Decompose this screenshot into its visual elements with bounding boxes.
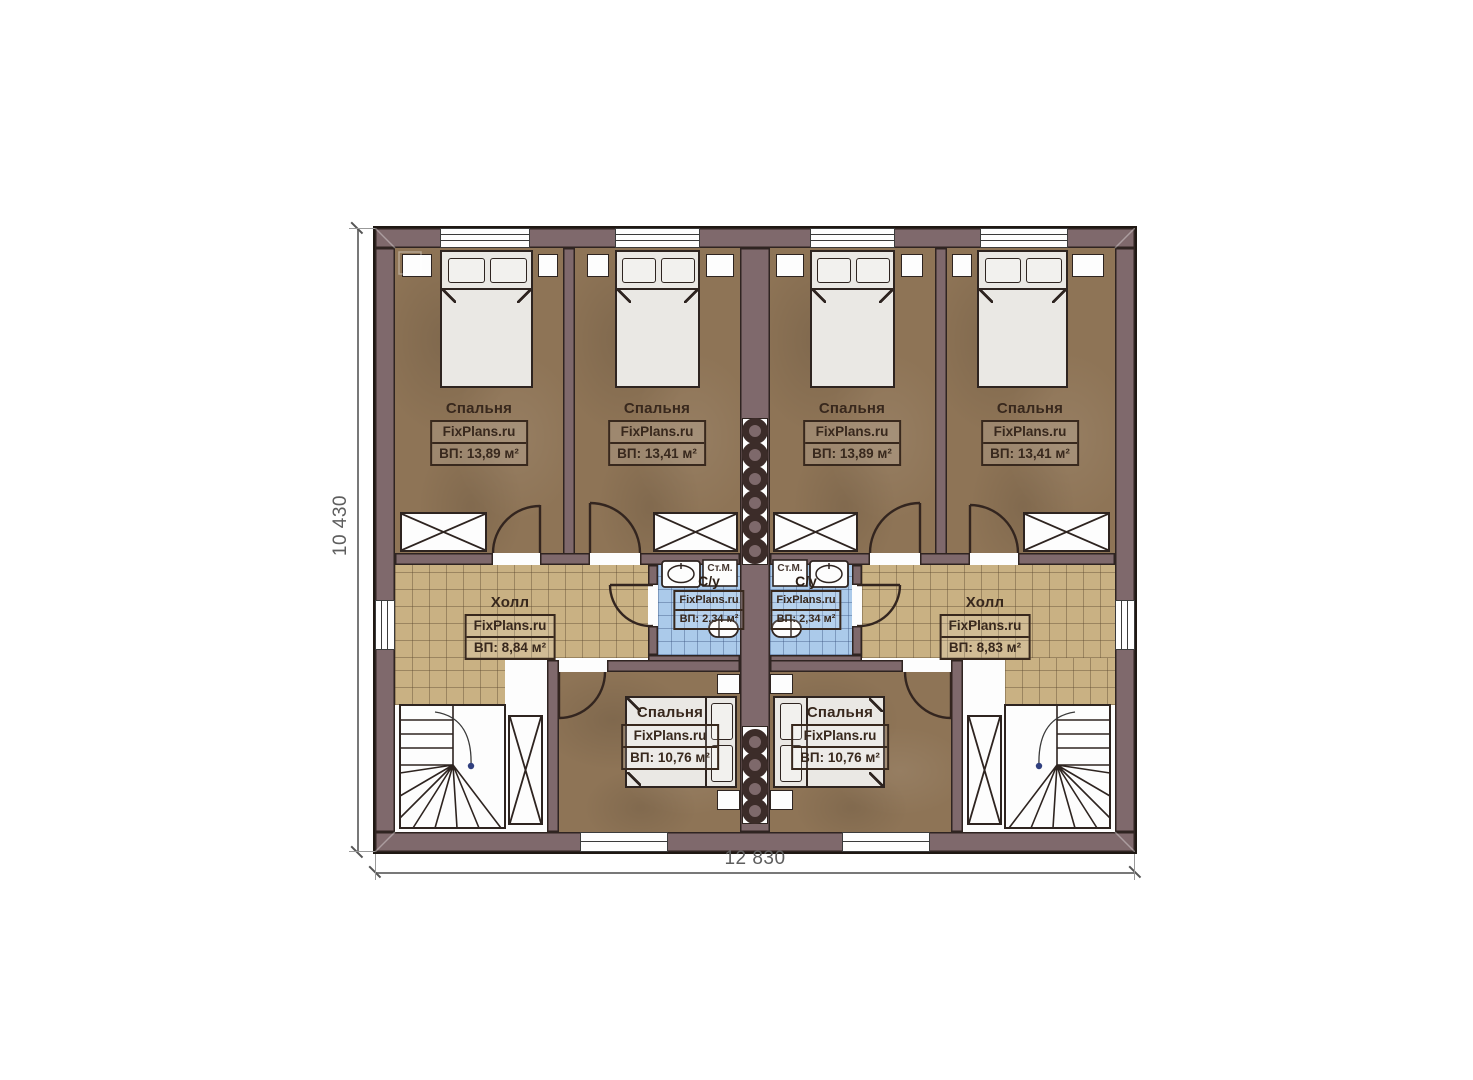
room-info-box: FixPlans.ru ВП: 13,41 м² [608, 420, 706, 466]
extension-line [349, 228, 375, 229]
dimension-width-label: 12 830 [700, 848, 810, 870]
watermark: FixPlans.ru [623, 726, 717, 746]
room-area: ВП: 2,34 м² [675, 609, 742, 628]
room-area: ВП: 13,41 м² [610, 442, 704, 464]
watermark: FixPlans.ru [675, 592, 742, 609]
room-label-bath-right: FixPlans.ru ВП: 2,34 м² [770, 590, 841, 630]
room-label-bedroom-2: Спальня FixPlans.ru ВП: 13,41 м² [608, 400, 706, 466]
room-label-bedroom-5: Спальня FixPlans.ru ВП: 10,76 м² [621, 704, 719, 770]
room-name: Холл [465, 594, 556, 611]
room-info-box: FixPlans.ru ВП: 13,89 м² [803, 420, 901, 466]
room-name: Спальня [608, 400, 706, 417]
extension-line [375, 854, 376, 880]
room-label-hall-right: Холл FixPlans.ru ВП: 8,83 м² [940, 594, 1031, 660]
plan-overlay [375, 228, 1135, 852]
room-area: ВП: 10,76 м² [623, 746, 717, 768]
floor-plan: Спальня FixPlans.ru ВП: 13,89 м² Спальня… [375, 228, 1135, 852]
dimension-line-width [375, 872, 1135, 874]
stair-left [400, 705, 505, 828]
room-name: Спальня [430, 400, 528, 417]
room-name-bath-left: С/у [698, 573, 720, 589]
room-label-bedroom-4: Спальня FixPlans.ru ВП: 13,41 м² [981, 400, 1079, 466]
watermark: FixPlans.ru [793, 726, 887, 746]
room-area: ВП: 13,89 м² [805, 442, 899, 464]
room-area: ВП: 8,84 м² [467, 636, 554, 658]
sink-left [662, 561, 700, 587]
room-info-box: FixPlans.ru ВП: 10,76 м² [791, 724, 889, 770]
room-info-box: FixPlans.ru ВП: 8,84 м² [465, 614, 556, 660]
room-info-box: FixPlans.ru ВП: 8,83 м² [940, 614, 1031, 660]
room-label-bedroom-6: Спальня FixPlans.ru ВП: 10,76 м² [791, 704, 889, 770]
room-info-box: FixPlans.ru ВП: 13,89 м² [430, 420, 528, 466]
room-info-box: FixPlans.ru ВП: 2,34 м² [673, 590, 744, 630]
watermark: FixPlans.ru [467, 616, 554, 636]
stair-right [1005, 705, 1110, 828]
room-name: Спальня [803, 400, 901, 417]
room-label-bedroom-1: Спальня FixPlans.ru ВП: 13,89 м² [430, 400, 528, 466]
room-info-box: FixPlans.ru ВП: 2,34 м² [770, 590, 841, 630]
room-area: ВП: 8,83 м² [942, 636, 1029, 658]
extension-line [349, 851, 375, 852]
room-area: ВП: 13,89 м² [432, 442, 526, 464]
room-label-bath-left: FixPlans.ru ВП: 2,34 м² [673, 590, 744, 630]
room-name: Спальня [791, 704, 889, 721]
room-area: ВП: 13,41 м² [983, 442, 1077, 464]
watermark: FixPlans.ru [983, 422, 1077, 442]
room-name: Спальня [621, 704, 719, 721]
extension-line [1134, 854, 1135, 880]
room-area: ВП: 10,76 м² [793, 746, 887, 768]
room-info-box: FixPlans.ru ВП: 13,41 м² [981, 420, 1079, 466]
dimension-height-label: 10 430 [330, 495, 352, 556]
room-name-bath-right: С/у [795, 573, 817, 589]
room-label-bedroom-3: Спальня FixPlans.ru ВП: 13,89 м² [803, 400, 901, 466]
room-name: Холл [940, 594, 1031, 611]
dimension-line-height [357, 228, 359, 852]
watermark: FixPlans.ru [610, 422, 704, 442]
watermark: FixPlans.ru [432, 422, 526, 442]
room-area: ВП: 2,34 м² [772, 609, 839, 628]
watermark: FixPlans.ru [942, 616, 1029, 636]
watermark: FixPlans.ru [805, 422, 899, 442]
room-info-box: FixPlans.ru ВП: 10,76 м² [621, 724, 719, 770]
watermark: FixPlans.ru [772, 592, 839, 609]
room-name: Спальня [981, 400, 1079, 417]
room-label-hall-left: Холл FixPlans.ru ВП: 8,84 м² [465, 594, 556, 660]
